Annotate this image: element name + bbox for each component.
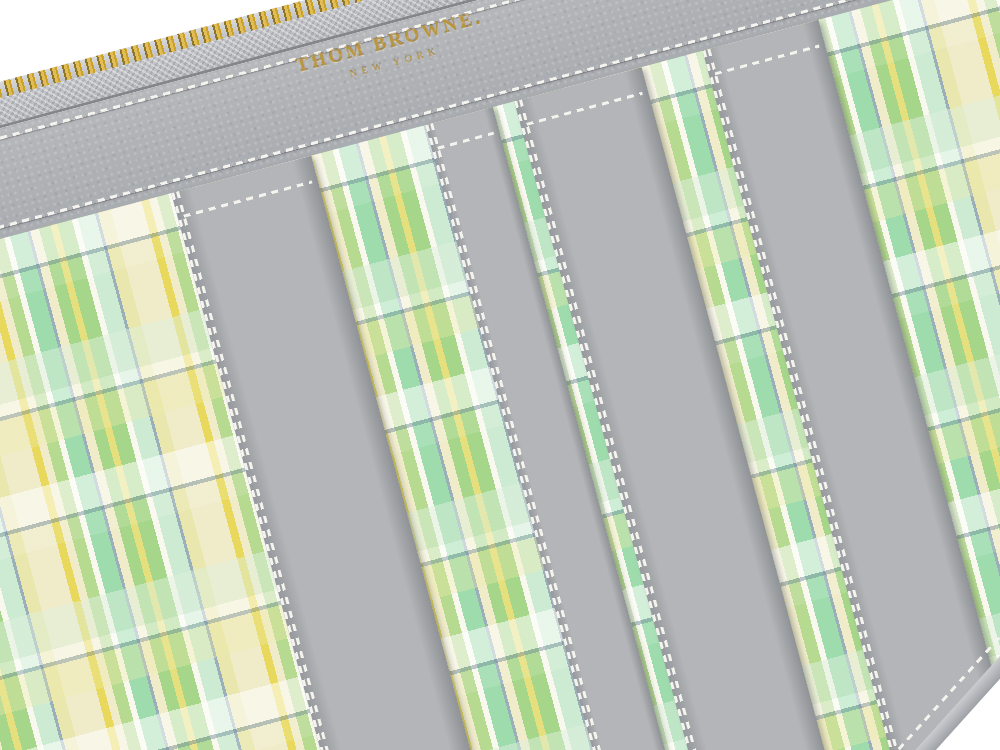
band-end-stitching — [437, 132, 494, 150]
zip-pouch: THOM BROWNE. NEW YORK — [0, 0, 1000, 750]
band-end-stitching — [714, 45, 819, 76]
product-photo: THOM BROWNE. NEW YORK — [0, 0, 1000, 750]
band-end-stitching — [183, 180, 312, 217]
band-end-stitching — [526, 92, 643, 126]
